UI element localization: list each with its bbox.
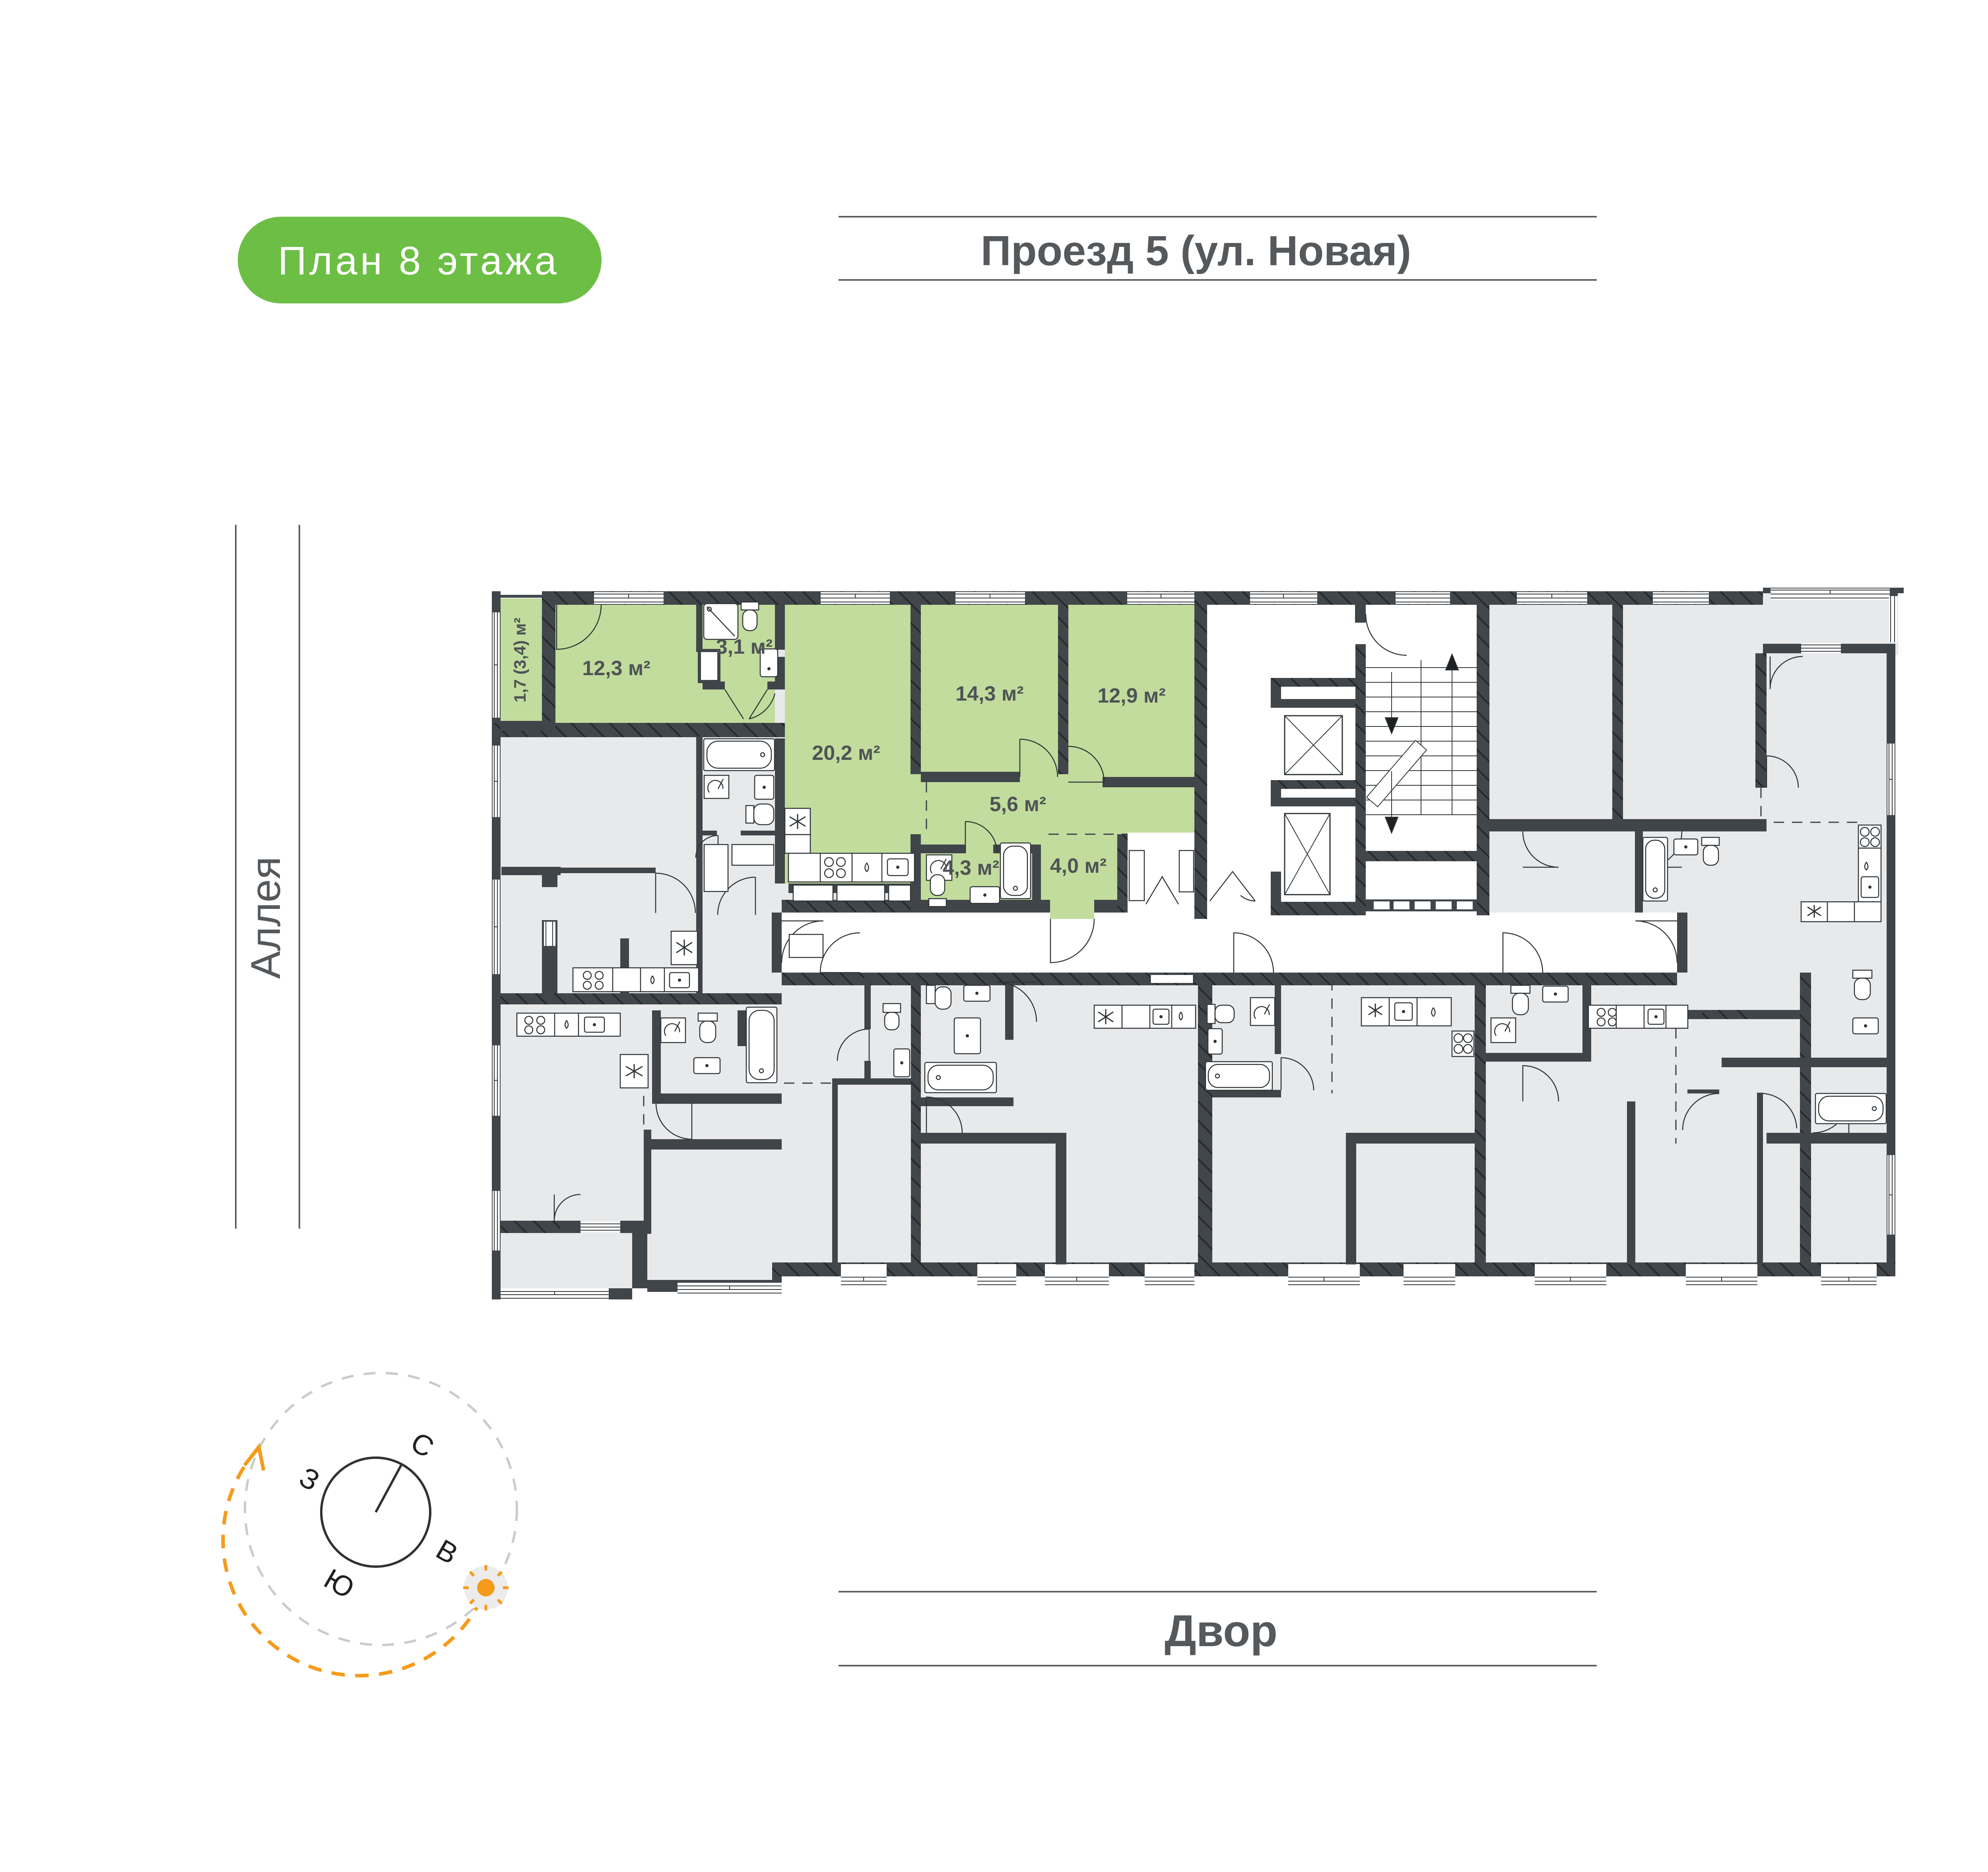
svg-text:14,3 м²: 14,3 м² <box>955 682 1023 705</box>
svg-text:4,0 м²: 4,0 м² <box>1050 854 1107 878</box>
svg-text:12,3 м²: 12,3 м² <box>582 657 650 680</box>
svg-text:4,3 м²: 4,3 м² <box>943 856 1000 880</box>
svg-text:Проезд 5 (ул. Новая): Проезд 5 (ул. Новая) <box>981 227 1411 274</box>
svg-text:3,1 м²: 3,1 м² <box>716 635 773 658</box>
svg-text:План 8 этажа: План 8 этажа <box>278 239 559 283</box>
svg-text:Аллея: Аллея <box>243 856 289 979</box>
svg-text:20,2 м²: 20,2 м² <box>812 742 880 765</box>
svg-text:1,7 (3,4) м²: 1,7 (3,4) м² <box>511 618 529 702</box>
svg-text:Двор: Двор <box>1165 1606 1277 1656</box>
svg-text:12,9 м²: 12,9 м² <box>1097 684 1165 707</box>
svg-text:5,6 м²: 5,6 м² <box>990 793 1046 816</box>
